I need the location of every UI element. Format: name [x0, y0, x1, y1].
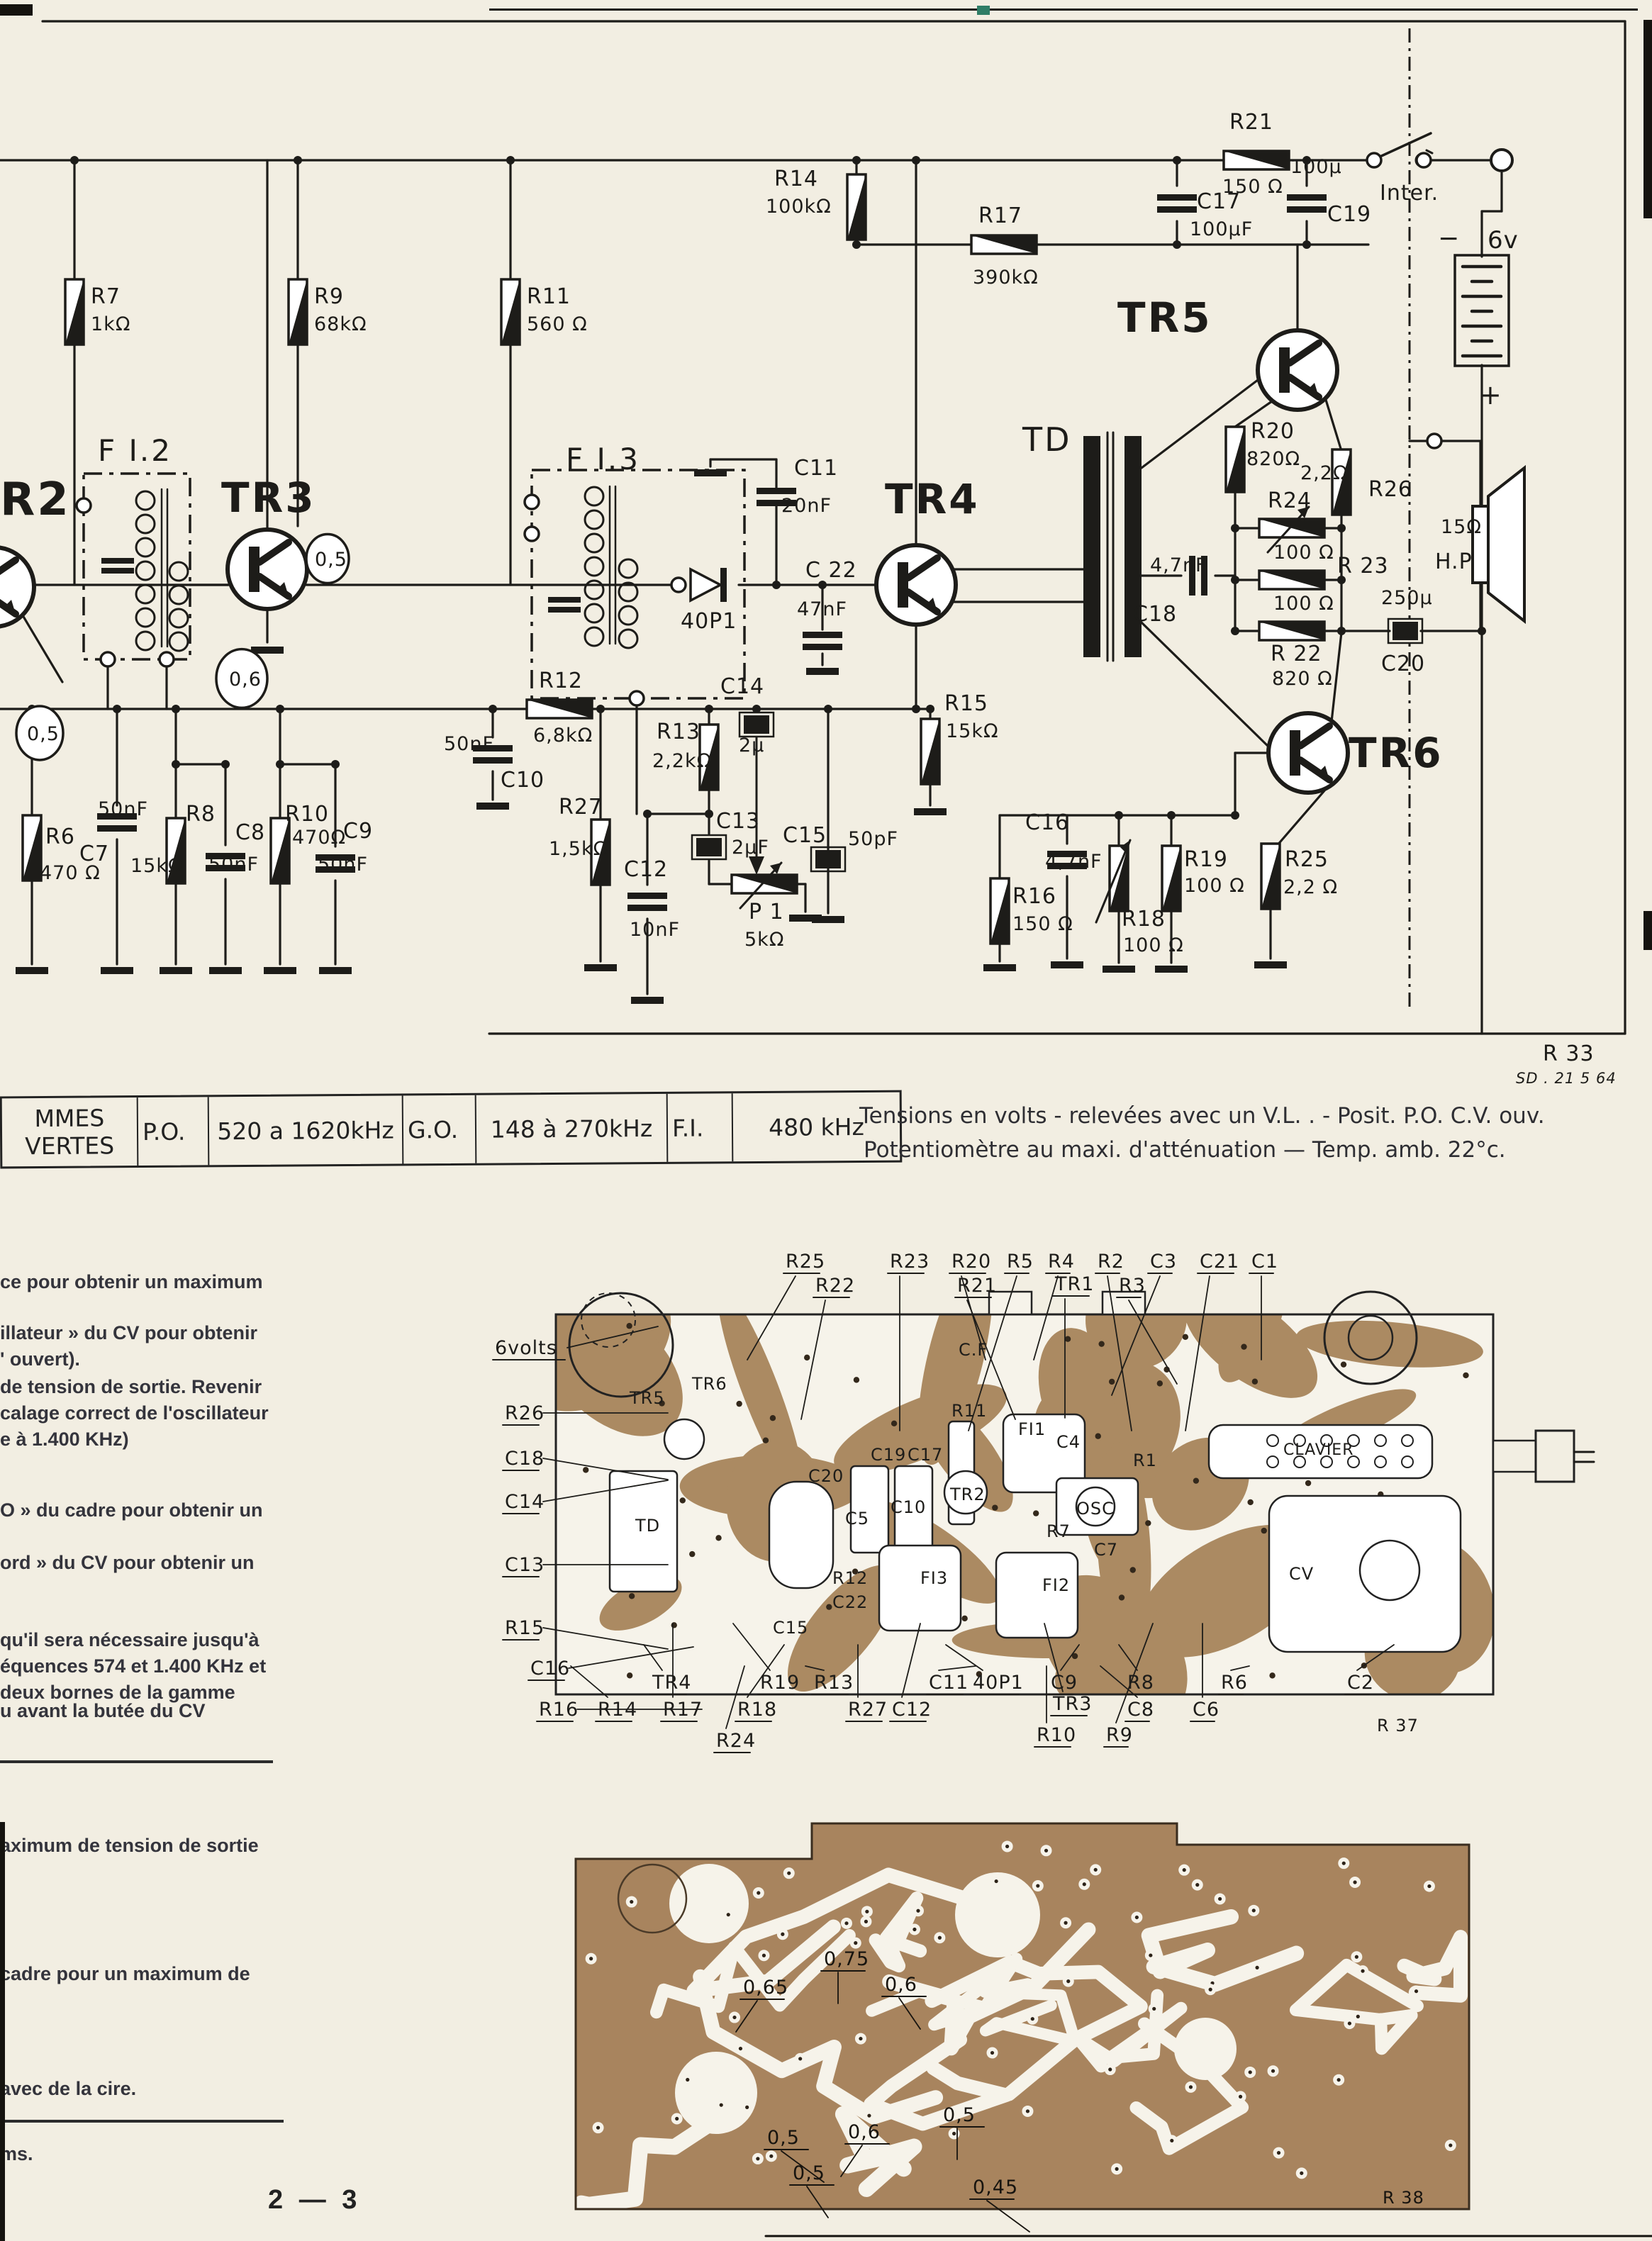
freq-table-cell: G.O. [403, 1095, 477, 1164]
pcb-ref-R38: R 38 [1383, 2188, 1424, 2208]
wire [1142, 622, 1271, 749]
component-value-R7: 1kΩ [91, 313, 130, 335]
component-value-P1: 5kΩ [744, 929, 784, 951]
instruction-fragment: de tension de sortie. Revenircalage corr… [0, 1374, 269, 1453]
component-value-C15: 50pF [848, 828, 898, 850]
component-id-R21: R21 [1229, 110, 1273, 135]
component-value-H.P: 15Ω [1441, 516, 1482, 538]
voltage-annotation-5: 0,5 [943, 2104, 976, 2126]
freq-table-text: 520 a 1620kHz [213, 1116, 398, 1145]
instruction-fragment: illateur » du CV pour obtenir' ouvert). [0, 1320, 257, 1373]
pcb-inside-label-C22: C22 [832, 1592, 868, 1612]
component-id-R16: R16 [1012, 884, 1056, 909]
freq-table-cell: P.O. [138, 1097, 210, 1166]
component-id-R18: R18 [1122, 907, 1166, 932]
pcb-label-40P1: 40P1 [973, 1672, 1024, 1694]
big-label-TR5: TR5 [1117, 294, 1212, 342]
pcb-inside-label-C4: C4 [1056, 1432, 1081, 1452]
pcb-label-C16: C16 [530, 1658, 570, 1680]
big-label-R2: R2 [0, 474, 71, 526]
pcb-label-C3: C3 [1150, 1251, 1177, 1273]
component-id-R8: R8 [186, 802, 216, 827]
component-id-R12: R12 [539, 669, 583, 693]
pcb-label-R6: R6 [1221, 1672, 1248, 1694]
component-value-R10: 470Ω [292, 827, 346, 849]
pcb-label-R10: R10 [1037, 1724, 1076, 1746]
freq-table-text: MMES [6, 1104, 133, 1132]
component-value-R23: 100 Ω [1273, 593, 1334, 615]
wire [1276, 784, 1330, 846]
pcb-label-C12: C12 [892, 1699, 932, 1721]
pcb-label-6volts: 6volts [495, 1337, 557, 1359]
component-id-R20: R20 [1251, 419, 1295, 444]
freq-table-cell: MMESVERTES [2, 1097, 139, 1166]
component-id-H.P: H.P [1435, 549, 1473, 574]
component-id-R13: R13 [657, 720, 701, 744]
component-id-C15: C15 [783, 823, 827, 848]
component-id-R7: R7 [91, 284, 121, 309]
big-label-FI.3: F I.3 [566, 442, 640, 476]
pcb-inside-label-TR2: TR2 [949, 1485, 986, 1504]
component-value-C20: 250μ [1381, 587, 1433, 609]
fi-filter-box [532, 470, 744, 698]
schematic-text: 6v [1488, 226, 1519, 255]
instruction-fragment: aximum de tension de sortie [0, 1833, 259, 1859]
schematic-text: SD . 21 5 64 [1516, 1070, 1617, 1087]
pcb-label-C13: C13 [505, 1554, 545, 1576]
wire [1332, 632, 1341, 722]
voltage-mark-0,5: 0,5 [27, 723, 60, 745]
pcb-label-R4: R4 [1048, 1251, 1075, 1273]
component-value-C19: 100μ [1290, 156, 1342, 178]
freq-table-text: 148 à 270kHz [481, 1114, 662, 1143]
pcb-label-C11: C11 [929, 1672, 969, 1694]
instruction-fragment: u avant la butée du CV [0, 1698, 206, 1724]
schematic-text: + [1479, 379, 1502, 410]
pcb-label-C18: C18 [505, 1448, 545, 1470]
pcb-label-R17: R17 [663, 1699, 703, 1721]
pcb-inside-label-C20: C20 [808, 1466, 844, 1486]
pcb-inside-label-FI3: FI3 [920, 1568, 948, 1588]
component-value-R21: 150 Ω [1222, 176, 1283, 198]
schematic-text: R 33 [1543, 1041, 1595, 1066]
voltage-mark-0,5: 0,5 [315, 549, 347, 571]
component-id-R6: R6 [45, 825, 75, 849]
fi-filter-box [84, 474, 190, 659]
voltage-annotation-2: 0,6 [885, 1974, 917, 1996]
td-transformer-winding [1083, 436, 1100, 657]
component-id-R25: R25 [1285, 847, 1329, 872]
pcb-label-C21: C21 [1200, 1251, 1239, 1273]
component-id-R19: R19 [1184, 847, 1228, 872]
pcb-inside-label-C7: C7 [1094, 1540, 1118, 1560]
freq-table-cell: F.I. [668, 1093, 734, 1162]
pcb-inside-label-R11: R11 [951, 1401, 987, 1421]
pcb-label-C9: C9 [1051, 1672, 1078, 1694]
component-id-R22: R 22 [1271, 642, 1322, 666]
component-value-R11: 560 Ω [527, 313, 588, 335]
component-value-C12: 10nF [630, 919, 680, 941]
schematic-text: − [1438, 224, 1460, 253]
component-value-R6: 470 Ω [40, 862, 101, 884]
voltage-annotation-0: 0,65 [743, 1977, 788, 1999]
pcb-label-C6: C6 [1193, 1699, 1220, 1721]
scan-edge-line [489, 9, 1638, 11]
pcb-ref-R37: R 37 [1377, 1716, 1419, 1736]
component-id-C22: C 22 [805, 558, 857, 583]
pcb-label-C14: C14 [505, 1491, 545, 1513]
freq-table-text: F.I. [672, 1114, 727, 1142]
component-value-C14: 2μ [739, 734, 764, 756]
component-value-C9: 50nF [318, 854, 368, 876]
measurement-note-line1: Tensions en volts - relevées avec un V.L… [859, 1103, 1545, 1129]
pcb-inside-label-TR5: TR5 [629, 1388, 665, 1408]
pcb-inside-label-FI1: FI1 [1018, 1419, 1046, 1439]
voltage-annotation-3: 0,5 [767, 2127, 800, 2149]
pcb-inside-label-C17: C17 [908, 1445, 943, 1465]
wire [23, 615, 62, 682]
component-value-R22: 820 Ω [1272, 668, 1333, 690]
pcb-inside-label-TR6: TR6 [691, 1374, 727, 1394]
pcb-label-R26: R26 [505, 1402, 545, 1424]
wire [1235, 401, 1272, 427]
pcb-label-R5: R5 [1007, 1251, 1034, 1273]
component-id-R14: R14 [774, 167, 818, 191]
voltage-annotation-6: 0,5 [793, 2162, 825, 2184]
pcb-label-R21: R21 [957, 1275, 997, 1297]
scan-color-mark [977, 6, 990, 15]
pcb-label-R8: R8 [1127, 1672, 1154, 1694]
pcb-inside-label-R1: R1 [1133, 1451, 1157, 1470]
pcb-label-R3: R3 [1119, 1275, 1146, 1297]
component-value-R27: 1,5kΩ [549, 838, 608, 860]
component-id-C13: C13 [716, 809, 760, 834]
instruction-fragment: ce pour obtenir un maximum [0, 1269, 263, 1295]
big-label-TR3: TR3 [221, 474, 316, 522]
component-value-R24: 100 Ω [1273, 542, 1334, 564]
component-value-R8: 15kΩ [130, 855, 184, 877]
pcb-inside-label-C15: C15 [773, 1618, 808, 1638]
scan-edge-mark [0, 1822, 5, 2241]
component-id-R11: R11 [527, 284, 571, 309]
pcb-inside-label-C5: C5 [845, 1509, 869, 1529]
voltage-annotation-7: 0,45 [973, 2176, 1018, 2198]
pcb-inside-label-C19: C19 [871, 1445, 906, 1465]
component-value-C18: 4,7nF [1150, 554, 1207, 576]
component-value-C16: 4,7nF [1045, 851, 1103, 873]
magazine-page: R71kΩR968kΩR11560 ΩR14100kΩR17390kΩR2115… [0, 0, 1652, 2241]
big-label-TR4: TR4 [885, 475, 980, 523]
component-value-R9: 68kΩ [314, 313, 367, 335]
scan-edge-mark [1643, 20, 1652, 218]
component-id-R10: R10 [285, 802, 329, 827]
pcb-inside-label-C.F: C.F [959, 1340, 988, 1360]
scan-edge-mark [0, 4, 33, 16]
component-id-C10: C10 [501, 768, 545, 793]
component-id-C9: C9 [343, 819, 373, 844]
pcb-inside-label-R12: R12 [832, 1568, 868, 1588]
pcb-label-R27: R27 [848, 1699, 888, 1721]
component-value-C7: 50nF [98, 798, 148, 820]
component-id-R24: R24 [1268, 488, 1312, 513]
component-id-C14: C14 [720, 674, 764, 699]
pcb-label-R24: R24 [716, 1730, 756, 1752]
pcb-label-R20: R20 [951, 1251, 991, 1273]
component-value-R16: 150 Ω [1012, 913, 1073, 935]
component-value-R20: 820Ω [1246, 448, 1300, 470]
pcb-label-R9: R9 [1106, 1724, 1133, 1746]
pcb-label-R23: R23 [890, 1251, 930, 1273]
pcb-inside-label-FI2: FI2 [1042, 1575, 1070, 1595]
component-id-Inter.: Inter. [1380, 181, 1439, 206]
component-id-C11: C11 [794, 456, 838, 481]
component-value-R14: 100kΩ [766, 196, 832, 218]
freq-table-cell: 520 a 1620kHz [209, 1095, 404, 1165]
freq-table-text: P.O. [143, 1117, 203, 1146]
pcb-label-R22: R22 [815, 1275, 855, 1297]
component-id-C7: C7 [79, 842, 109, 866]
wire [1142, 380, 1258, 468]
instruction-fragment: cadre pour un maximum de [0, 1961, 250, 1987]
instruction-fragment: qu'il sera nécessaire jusqu'àéquences 57… [0, 1627, 266, 1706]
pcb-label-C8: C8 [1127, 1699, 1154, 1721]
component-id-P1: P 1 [749, 900, 784, 924]
pcb-label-R18: R18 [737, 1699, 777, 1721]
td-transformer-winding [1124, 436, 1142, 657]
component-id-C8: C8 [235, 820, 265, 845]
pcb-label-C1: C1 [1251, 1251, 1278, 1273]
component-id-C18: C18 [1133, 602, 1177, 627]
pcb-label-TR1: TR1 [1054, 1273, 1094, 1295]
pcb-inside-label-R7: R7 [1047, 1521, 1071, 1541]
pcb-label-R2: R2 [1098, 1251, 1124, 1273]
voltage-mark-0,6: 0,6 [229, 669, 262, 691]
component-value-C17: 100μF [1190, 218, 1253, 240]
freq-table-text: G.O. [408, 1115, 471, 1144]
component-value-R12: 6,8kΩ [533, 725, 593, 747]
pcb-inside-label-TD: TD [635, 1516, 660, 1536]
pcb-inside-label-C10: C10 [891, 1497, 926, 1517]
big-label-FI.2: F I.2 [98, 433, 172, 468]
component-value-R15: 15kΩ [946, 720, 999, 742]
component-value-C11: 20nF [781, 495, 832, 517]
pcb-inside-label-CV: CV [1289, 1564, 1314, 1584]
component-id-40P1: 40P1 [681, 609, 737, 634]
pcb-label-R14: R14 [598, 1699, 637, 1721]
component-value-C8: 50nF [208, 854, 259, 876]
component-value-R26: 2,2Ω [1300, 462, 1349, 484]
component-id-C19: C19 [1327, 202, 1371, 227]
component-value-R19: 100 Ω [1184, 875, 1245, 897]
big-label-TR6: TR6 [1349, 729, 1444, 777]
wire [1326, 400, 1341, 451]
pcb-label-R25: R25 [786, 1251, 825, 1273]
scan-edge-mark [1643, 911, 1652, 950]
column-divider [0, 1760, 273, 1763]
component-id-R23: R 23 [1337, 554, 1389, 579]
voltage-annotation-4: 0,6 [848, 2121, 881, 2143]
column-divider [0, 2120, 284, 2123]
voltage-annotation-1: 0,75 [824, 1948, 869, 1970]
component-id-R9: R9 [314, 284, 344, 309]
frequency-coverage-table: MMESVERTESP.O.520 a 1620kHzG.O.148 à 270… [0, 1090, 902, 1169]
instruction-fragment: O » du cadre pour obtenir un [0, 1497, 263, 1524]
component-id-R26: R26 [1368, 477, 1412, 502]
component-id-C17: C17 [1197, 189, 1241, 214]
page-number: 2 — 3 [268, 2185, 361, 2215]
pcb-label-R15: R15 [505, 1617, 545, 1639]
instruction-fragment: avec de la cire. [0, 2076, 136, 2102]
freq-table-cell: 148 à 270kHz [476, 1094, 669, 1163]
component-value-R18: 100 Ω [1123, 934, 1184, 956]
measurement-note-line2: Potentiomètre au maxi. d'atténuation — T… [864, 1137, 1506, 1163]
pcb-label-TR3: TR3 [1052, 1693, 1092, 1715]
component-value-R25: 2,2 Ω [1283, 876, 1338, 898]
component-value-R17: 390kΩ [973, 267, 1039, 289]
instruction-fragment: ord » du CV pour obtenir un [0, 1550, 254, 1576]
component-id-R27: R27 [559, 795, 603, 820]
component-id-C16: C16 [1025, 810, 1069, 835]
pcb-label-C2: C2 [1347, 1672, 1374, 1694]
component-value-R13: 2,2kΩ [652, 750, 712, 772]
component-id-C12: C12 [624, 857, 668, 882]
pcb-label-R13: R13 [814, 1672, 854, 1694]
component-id-R17: R17 [978, 203, 1022, 228]
component-id-C20: C20 [1381, 652, 1425, 676]
pcb-label-R16: R16 [539, 1699, 579, 1721]
big-label-TD: TD [1022, 420, 1072, 459]
pcb-label-TR4: TR4 [652, 1672, 691, 1694]
component-value-C22: 47nF [797, 598, 847, 620]
pcb-inside-label-CLAVIER: CLAVIER [1283, 1441, 1354, 1459]
component-value-C13: 2μF [732, 837, 769, 859]
component-id-R15: R15 [944, 691, 988, 716]
pcb-inside-label-OSC: OSC [1076, 1499, 1115, 1519]
component-value-C10: 50nF [444, 733, 494, 755]
freq-table-text: VERTES [6, 1131, 133, 1160]
pcb-label-R19: R19 [760, 1672, 800, 1694]
